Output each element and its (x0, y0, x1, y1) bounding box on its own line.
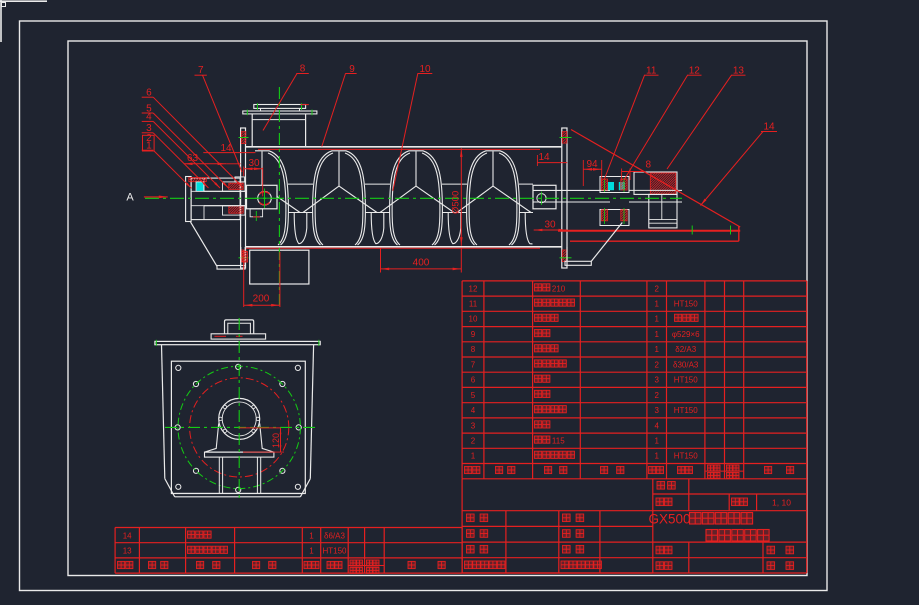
svg-text:GX500: GX500 (649, 512, 691, 527)
svg-text:14: 14 (763, 122, 775, 133)
svg-text:3: 3 (654, 406, 659, 415)
svg-text:8: 8 (471, 345, 476, 354)
svg-text:1: 1 (654, 330, 659, 339)
svg-text:8: 8 (300, 64, 306, 75)
svg-text:115: 115 (552, 437, 565, 446)
svg-text:HT150: HT150 (674, 376, 699, 385)
svg-text:14: 14 (539, 152, 551, 163)
svg-text:8: 8 (646, 160, 652, 171)
svg-text:δ2/A3: δ2/A3 (675, 345, 696, 354)
svg-text:δ6/A3: δ6/A3 (324, 532, 345, 541)
svg-text:1: 1 (654, 345, 659, 354)
svg-text:12: 12 (469, 284, 478, 293)
svg-text:13: 13 (123, 547, 132, 556)
svg-text:2: 2 (654, 391, 659, 400)
svg-text:1: 1 (654, 452, 659, 461)
svg-text:δ30/A3: δ30/A3 (673, 360, 699, 369)
svg-text:1: 1 (471, 452, 476, 461)
svg-text:9: 9 (471, 330, 476, 339)
svg-text:7: 7 (198, 65, 204, 76)
svg-text:2: 2 (654, 284, 659, 293)
svg-text:HT150: HT150 (674, 300, 699, 309)
svg-text:120: 120 (271, 433, 281, 448)
svg-text:7: 7 (471, 360, 476, 369)
svg-text:HT150: HT150 (322, 547, 347, 556)
svg-text:210: 210 (552, 284, 566, 293)
svg-text:200: 200 (253, 294, 270, 305)
svg-text:4: 4 (654, 421, 659, 430)
svg-text:1: 1 (654, 300, 659, 309)
svg-text:A: A (126, 192, 134, 204)
svg-text:Ø500: Ø500 (451, 191, 462, 214)
svg-text:400: 400 (413, 258, 430, 269)
svg-text:3: 3 (654, 376, 659, 385)
svg-text:94: 94 (587, 159, 599, 170)
svg-text:30: 30 (249, 158, 261, 169)
svg-text:11: 11 (469, 300, 478, 309)
svg-text:6: 6 (471, 376, 476, 385)
svg-text:4: 4 (471, 406, 476, 415)
svg-text:HT150: HT150 (674, 406, 699, 415)
svg-text:φ529×6: φ529×6 (672, 330, 700, 339)
svg-text:30: 30 (545, 220, 557, 231)
svg-text:1: 1 (654, 315, 659, 324)
svg-text:63: 63 (187, 153, 199, 164)
svg-text:1: 1 (654, 437, 659, 446)
svg-text:14: 14 (123, 532, 132, 541)
svg-text:1, 10: 1, 10 (772, 498, 791, 508)
svg-text:2: 2 (471, 437, 476, 446)
svg-text:10: 10 (469, 315, 478, 324)
svg-text:1: 1 (309, 532, 314, 541)
svg-text:5: 5 (471, 391, 476, 400)
svg-text:HT150: HT150 (674, 452, 699, 461)
svg-text:1: 1 (309, 547, 314, 556)
svg-text:3: 3 (471, 421, 476, 430)
svg-text:2: 2 (654, 360, 659, 369)
